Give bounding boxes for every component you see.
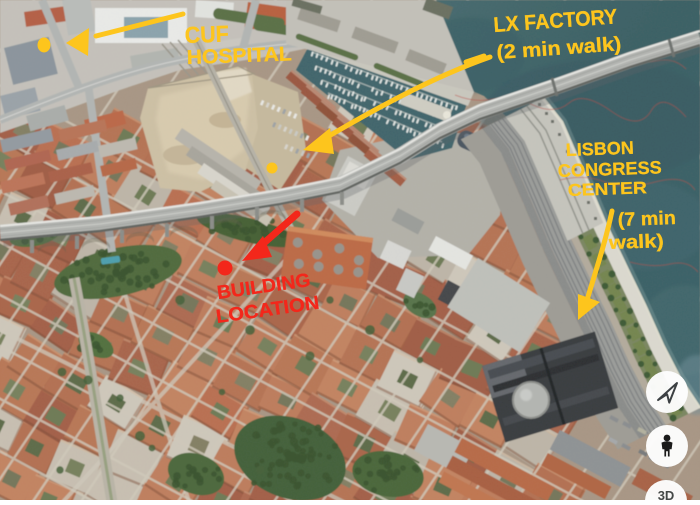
svg-text:3D: 3D bbox=[658, 488, 675, 500]
svg-text:LISBON: LISBON bbox=[565, 138, 634, 160]
svg-text:CENTER: CENTER bbox=[567, 178, 647, 200]
svg-text:HOSPITAL: HOSPITAL bbox=[186, 43, 292, 69]
svg-text:walk): walk) bbox=[607, 231, 664, 254]
svg-text:(7 min: (7 min bbox=[617, 208, 676, 231]
svg-text:CUF: CUF bbox=[184, 20, 229, 48]
